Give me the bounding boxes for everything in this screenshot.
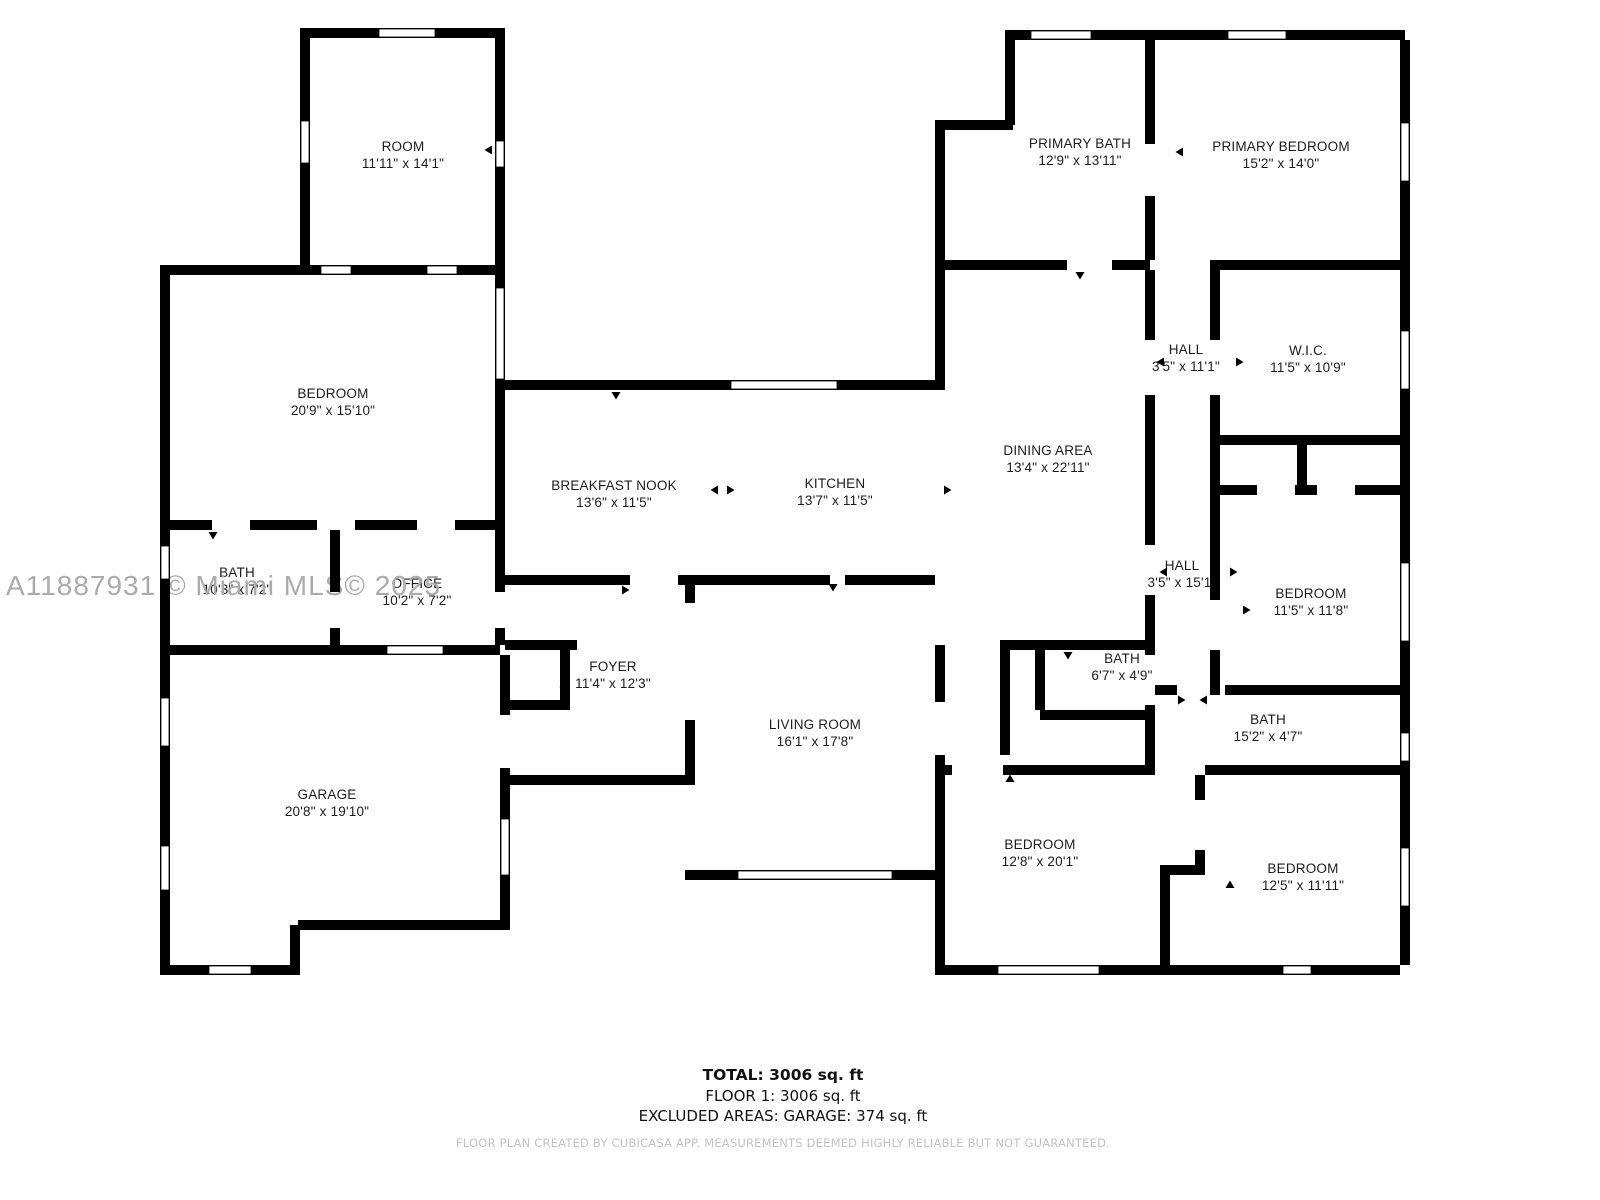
room-label-primary-bedroom: PRIMARY BEDROOM15'2" x 14'0" — [1212, 138, 1350, 172]
door-markers-layer — [209, 146, 1251, 889]
room-name: HALL — [1148, 557, 1217, 574]
room-dimensions: 11'4" x 12'3" — [575, 675, 651, 692]
room-name: PRIMARY BATH — [1029, 135, 1131, 152]
windows-layer — [161, 29, 1410, 975]
room-name: BATH — [203, 564, 272, 581]
room-label-primary-bath: PRIMARY BATH12'9" x 13'11" — [1029, 135, 1131, 169]
room-label-bath-left: BATH10'3" x 7'2" — [203, 564, 272, 598]
room-name: KITCHEN — [797, 475, 873, 492]
room-label-bedroom-bottom-middle: BEDROOM12'8" x 20'1" — [1002, 836, 1079, 870]
room-name: W.I.C. — [1270, 342, 1346, 359]
room-dimensions: 11'5" x 11'8" — [1274, 602, 1349, 619]
room-dimensions: 16'1" x 17'8" — [769, 733, 861, 750]
room-name: BEDROOM — [1274, 585, 1349, 602]
room-label-garage: GARAGE20'8" x 19'10" — [285, 786, 369, 820]
room-label-bedroom-right: BEDROOM11'5" x 11'8" — [1274, 585, 1349, 619]
room-name: ROOM — [362, 138, 444, 155]
room-dimensions: 12'8" x 20'1" — [1002, 853, 1079, 870]
room-label-office: OFFICE10'2" x 7'2" — [383, 575, 452, 609]
room-label-hall-lower: HALL3'5" x 15'1" — [1148, 557, 1217, 591]
room-label-living-room: LIVING ROOM16'1" x 17'8" — [769, 716, 861, 750]
summary-total: TOTAL: 3006 sq. ft — [0, 1066, 1566, 1084]
room-name: BEDROOM — [291, 385, 375, 402]
room-name: LIVING ROOM — [769, 716, 861, 733]
floor-plan: ROOM11'11" x 14'1"BEDROOM20'9" x 15'10"B… — [0, 0, 1600, 1200]
room-dimensions: 15'2" x 4'7" — [1234, 728, 1303, 745]
room-dimensions: 3'5" x 15'1" — [1148, 574, 1217, 591]
room-label-breakfast-nook: BREAKFAST NOOK13'6" x 11'5" — [551, 477, 677, 511]
room-dimensions: 20'8" x 19'10" — [285, 803, 369, 820]
room-name: GARAGE — [285, 786, 369, 803]
room-label-dining-area: DINING AREA13'4" x 22'11" — [1003, 442, 1092, 476]
room-name: PRIMARY BEDROOM — [1212, 138, 1350, 155]
room-dimensions: 20'9" x 15'10" — [291, 402, 375, 419]
room-label-bedroom-bottom-right: BEDROOM12'5" x 11'11" — [1262, 860, 1344, 894]
room-dimensions: 11'11" x 14'1" — [362, 155, 444, 172]
room-label-hall-upper: HALL3'5" x 11'1" — [1152, 341, 1220, 375]
room-name: BREAKFAST NOOK — [551, 477, 677, 494]
room-label-kitchen: KITCHEN13'7" x 11'5" — [797, 475, 873, 509]
floor-plan-svg — [0, 0, 1600, 1200]
room-dimensions: 12'5" x 11'11" — [1262, 877, 1344, 894]
room-name: HALL — [1152, 341, 1220, 358]
room-label-wic: W.I.C.11'5" x 10'9" — [1270, 342, 1346, 376]
room-name: OFFICE — [383, 575, 452, 592]
room-name: BATH — [1091, 650, 1152, 667]
room-name: BEDROOM — [1002, 836, 1079, 853]
summary-floor: FLOOR 1: 3006 sq. ft — [0, 1087, 1566, 1105]
room-name: BEDROOM — [1262, 860, 1344, 877]
room-dimensions: 15'2" x 14'0" — [1212, 155, 1350, 172]
room-label-bath-small: BATH6'7" x 4'9" — [1091, 650, 1152, 684]
room-label-room: ROOM11'11" x 14'1" — [362, 138, 444, 172]
mls-watermark: A11887931 © Miami MLS© 2025 — [6, 570, 441, 602]
room-label-bedroom-left: BEDROOM20'9" x 15'10" — [291, 385, 375, 419]
room-dimensions: 13'7" x 11'5" — [797, 492, 873, 509]
area-summary: TOTAL: 3006 sq. ft FLOOR 1: 3006 sq. ft … — [0, 1066, 1566, 1127]
room-dimensions: 11'5" x 10'9" — [1270, 359, 1346, 376]
room-dimensions: 12'9" x 13'11" — [1029, 152, 1131, 169]
room-dimensions: 13'4" x 22'11" — [1003, 459, 1092, 476]
room-dimensions: 13'6" x 11'5" — [551, 494, 677, 511]
room-label-bath-long: BATH15'2" x 4'7" — [1234, 711, 1303, 745]
summary-excluded: EXCLUDED AREAS: GARAGE: 374 sq. ft — [0, 1107, 1566, 1125]
room-labels-layer: ROOM11'11" x 14'1"BEDROOM20'9" x 15'10"B… — [0, 0, 1600, 1200]
footer-disclaimer: FLOOR PLAN CREATED BY CUBICASA APP. MEAS… — [0, 1136, 1566, 1150]
room-name: BATH — [1234, 711, 1303, 728]
room-label-foyer: FOYER11'4" x 12'3" — [575, 658, 651, 692]
room-dimensions: 10'2" x 7'2" — [383, 592, 452, 609]
room-name: DINING AREA — [1003, 442, 1092, 459]
room-name: FOYER — [575, 658, 651, 675]
room-dimensions: 10'3" x 7'2" — [203, 581, 272, 598]
walls-layer — [160, 28, 1410, 975]
room-dimensions: 6'7" x 4'9" — [1091, 667, 1152, 684]
room-dimensions: 3'5" x 11'1" — [1152, 358, 1220, 375]
